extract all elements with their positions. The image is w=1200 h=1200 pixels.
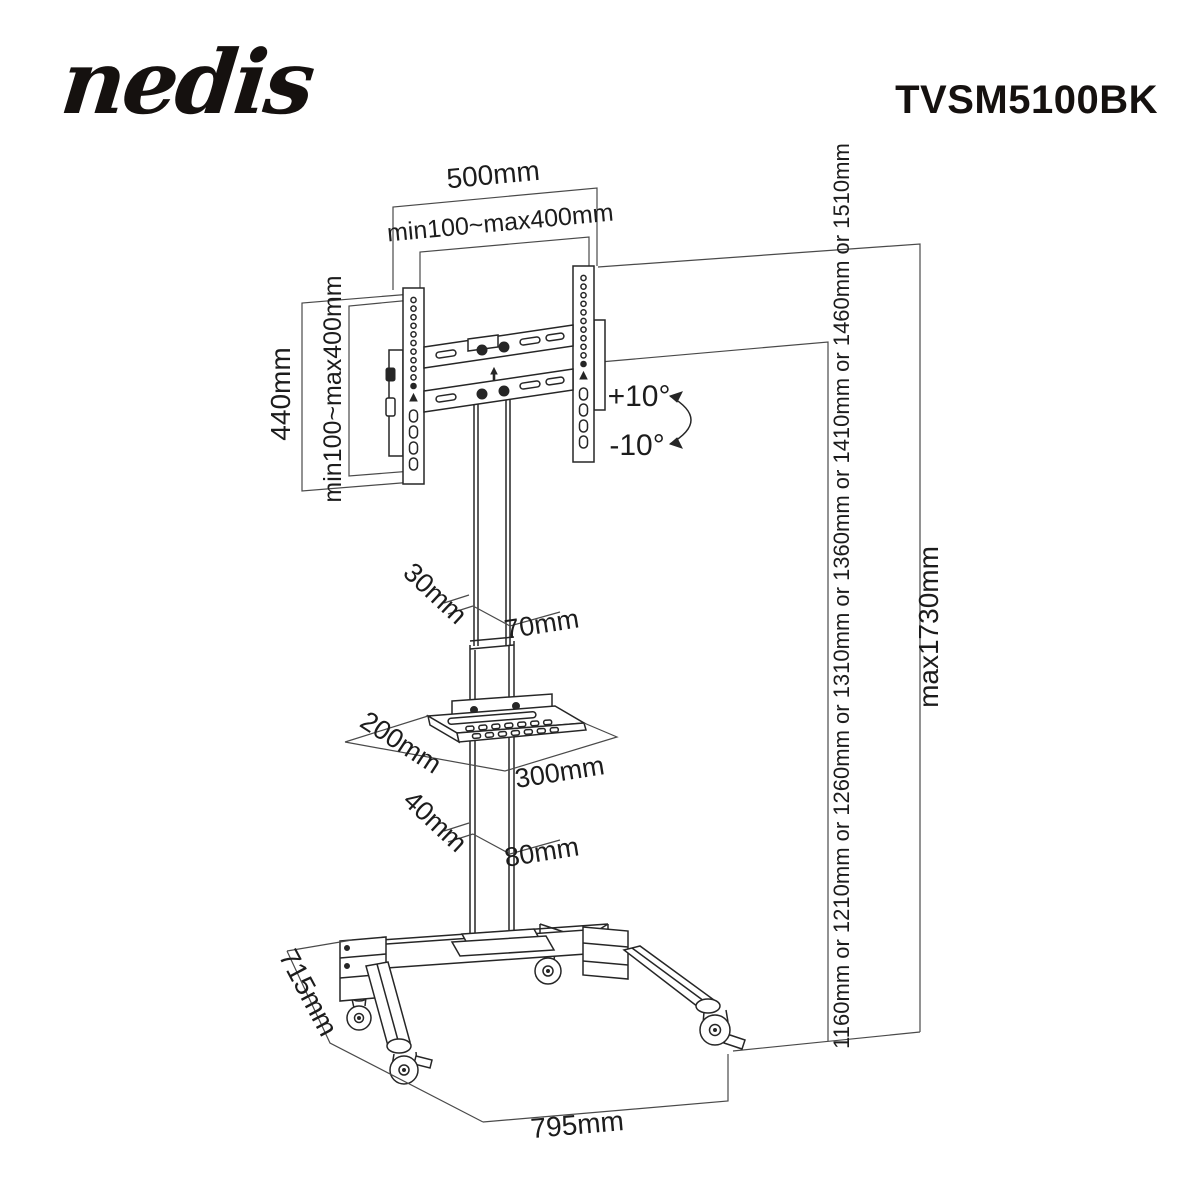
lower-pole-depth-label: 40mm (397, 785, 472, 858)
dim-upper-pole: 30mm 70mm (397, 557, 581, 645)
tilt-indicator: +10° -10° (608, 380, 691, 462)
tv-stand-diagram: max1730mm 1160mm or 1210mm or 1260mm or … (0, 0, 1200, 1200)
tilt-up-label: +10° (608, 380, 671, 413)
vesa-plate-height-label: 440mm (265, 347, 296, 440)
dim-screen-center-heights: 1160mm or 1210mm or 1260mm or 1310mm or … (600, 143, 854, 1049)
upper-pole-depth-label: 30mm (397, 557, 472, 630)
dim-base-width: 795mm (483, 1054, 728, 1144)
upper-pole-width-label: 70mm (502, 603, 581, 644)
vesa-height-range-label: min100~max400mm (319, 275, 347, 502)
vesa-width-range-label: min100~max400mm (386, 199, 615, 248)
max-height-label: max1730mm (913, 546, 944, 708)
shelf-width-label: 300mm (513, 750, 607, 794)
vesa-plate-width-label: 500mm (445, 155, 541, 194)
product-dimension-sheet: nedis TVSM5100BK max1730mm 1160mm or 121… (0, 0, 1200, 1200)
base-width-label: 795mm (529, 1105, 625, 1144)
tv-bracket (386, 266, 605, 484)
base (340, 924, 745, 1084)
dim-lower-pole: 40mm 80mm (397, 785, 581, 873)
dim-max-height: max1730mm (598, 244, 944, 1051)
shelf (428, 694, 586, 742)
base-depth-label: 715mm (273, 944, 344, 1041)
tilt-down-label: -10° (609, 429, 664, 462)
screen-heights-label: 1160mm or 1210mm or 1260mm or 1310mm or … (829, 143, 854, 1049)
